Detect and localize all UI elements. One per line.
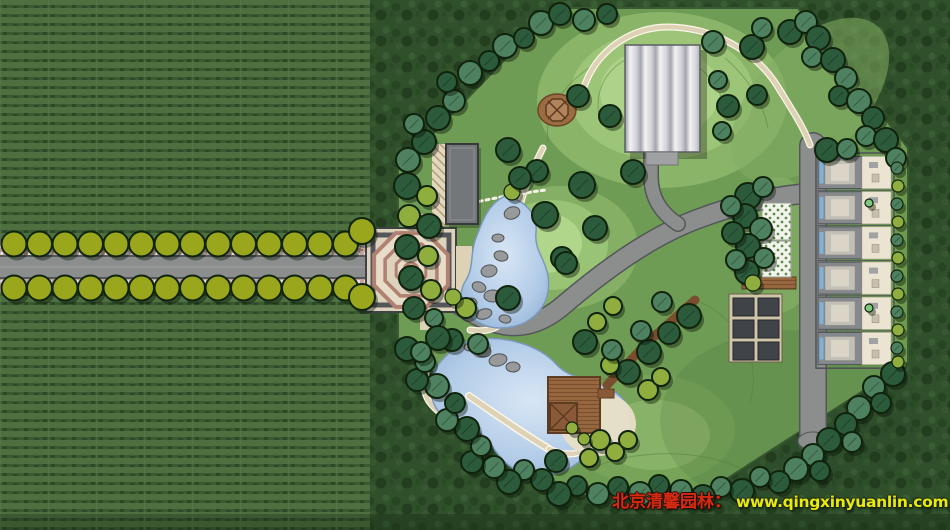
site-plan-svg xyxy=(0,0,950,530)
watermark-brand: 北京清馨园林： xyxy=(612,487,731,512)
striped-roof-building xyxy=(625,45,707,165)
watermark-url: www.qingxinyuanlin.com xyxy=(736,493,948,511)
bottom-shade xyxy=(0,514,950,530)
pergola-seating xyxy=(729,294,782,362)
service-building xyxy=(432,144,481,228)
landscape-plan-image: 北京清馨园林： www.qingxinyuanlin.com xyxy=(0,0,950,530)
watermark: 北京清馨园林： www.qingxinyuanlin.com xyxy=(612,487,948,512)
townhouse-row xyxy=(816,153,894,368)
